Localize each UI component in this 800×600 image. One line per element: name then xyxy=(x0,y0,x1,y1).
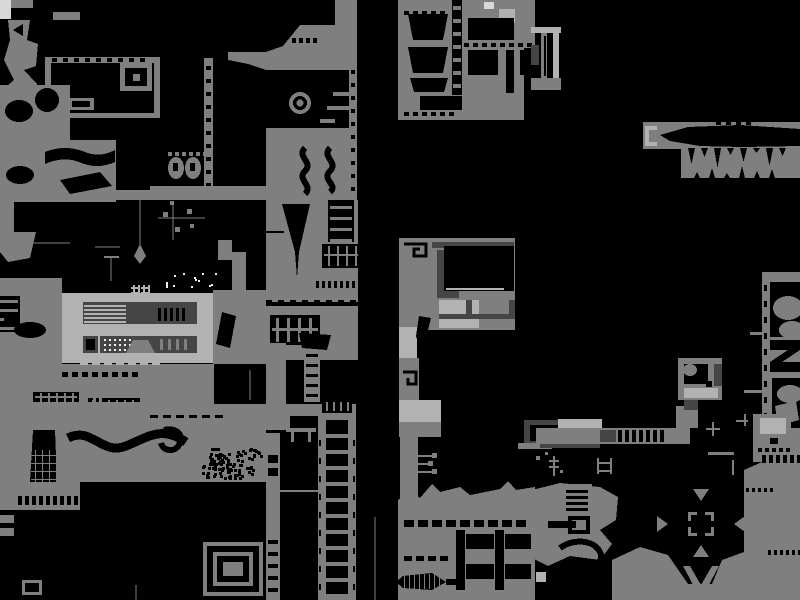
map-shape xyxy=(0,414,290,430)
map-shape xyxy=(84,309,126,311)
ledge xyxy=(333,92,349,96)
map-shape xyxy=(31,471,57,472)
map-shape xyxy=(446,520,456,527)
room xyxy=(505,564,531,579)
map-shape xyxy=(67,496,71,505)
map-shape xyxy=(351,109,355,113)
rubble-specks xyxy=(251,473,254,476)
map-shape xyxy=(136,585,137,600)
room xyxy=(420,96,462,110)
map-shape xyxy=(306,384,318,387)
map-shape xyxy=(132,372,138,377)
indicator-lights xyxy=(109,344,111,346)
room xyxy=(408,14,448,40)
map-shape xyxy=(764,397,767,403)
map-shape xyxy=(80,357,88,365)
map-shape xyxy=(353,530,355,536)
map-shape xyxy=(319,548,321,554)
rubble-specks xyxy=(238,453,241,456)
map-shape xyxy=(299,333,331,350)
rubble-specks xyxy=(249,449,252,452)
rubble-specks xyxy=(214,448,217,451)
map-shape xyxy=(168,152,172,156)
map-shape xyxy=(326,450,348,454)
star-specks xyxy=(173,285,175,287)
map-shape xyxy=(409,574,410,589)
rubble-specks xyxy=(224,477,227,480)
map-shape xyxy=(399,422,441,437)
map-shape xyxy=(163,212,168,217)
map-shape xyxy=(213,552,253,556)
map-shape xyxy=(0,243,70,244)
rubble-specks xyxy=(233,463,236,466)
map-shape xyxy=(319,566,321,572)
map-shape xyxy=(429,574,430,589)
map-shape xyxy=(140,357,148,365)
map-shape xyxy=(404,556,412,561)
star-specks xyxy=(166,282,168,284)
map-shape xyxy=(268,468,278,476)
map-shape xyxy=(586,516,590,534)
map-shape xyxy=(716,120,721,125)
map-shape xyxy=(776,455,780,463)
map-shape xyxy=(299,38,303,43)
map-shape xyxy=(158,308,161,321)
map-shape xyxy=(566,496,588,499)
star-specks xyxy=(194,277,196,279)
map-shape xyxy=(96,58,101,62)
map-shape xyxy=(102,372,108,377)
map-shape xyxy=(62,372,68,377)
rubble-specks xyxy=(222,467,225,470)
map-shape xyxy=(176,308,179,321)
map-shape xyxy=(189,415,197,418)
rubble-specks xyxy=(213,475,216,478)
map-shape xyxy=(453,45,461,49)
map-shape xyxy=(60,496,64,505)
star-specks xyxy=(174,275,176,277)
map-shape xyxy=(482,43,487,47)
map-shape xyxy=(92,372,98,377)
map-shape xyxy=(160,339,163,350)
ledge xyxy=(327,106,349,110)
map-shape xyxy=(112,372,118,377)
gate-structure xyxy=(531,27,561,33)
map-shape xyxy=(306,38,310,43)
map-shape xyxy=(765,448,769,452)
light-box xyxy=(399,400,441,422)
map-shape xyxy=(93,390,96,403)
map-shape xyxy=(25,496,29,505)
rubble-specks xyxy=(239,477,242,480)
map-shape xyxy=(168,339,171,350)
map-shape xyxy=(764,285,767,291)
map-shape xyxy=(5,100,33,122)
map-shape xyxy=(268,455,278,463)
ruler-mark xyxy=(706,139,764,141)
map-shape xyxy=(758,488,761,492)
map-shape xyxy=(319,458,321,464)
map-shape xyxy=(351,96,355,100)
map-shape xyxy=(232,252,246,292)
rubble-specks xyxy=(238,469,241,472)
rubble-specks xyxy=(252,469,255,472)
rubble-specks xyxy=(239,464,242,467)
map-shape xyxy=(764,488,767,492)
indicator-lights xyxy=(114,349,116,351)
map-shape xyxy=(313,38,317,43)
map-shape xyxy=(558,419,602,428)
map-shape xyxy=(0,300,18,303)
map-shape xyxy=(353,548,355,554)
map-shape xyxy=(780,550,783,555)
map-shape xyxy=(744,414,746,426)
map-shape xyxy=(439,314,515,319)
map-shape xyxy=(520,50,528,75)
map-shape xyxy=(280,490,320,492)
map-shape xyxy=(175,227,180,232)
map-shape xyxy=(196,152,200,156)
rubble-specks xyxy=(246,467,249,470)
indicator-lights xyxy=(119,344,121,346)
map-shape xyxy=(404,11,409,15)
star-specks xyxy=(195,279,197,281)
map-shape xyxy=(11,0,33,8)
rubble-specks xyxy=(214,468,217,471)
map-shape xyxy=(706,135,708,146)
rubble-specks xyxy=(221,459,224,462)
crenellation xyxy=(290,300,296,306)
map-shape xyxy=(736,420,748,422)
map-shape xyxy=(173,163,178,171)
map-shape xyxy=(291,432,294,442)
map-shape xyxy=(190,224,194,228)
map-shape xyxy=(351,70,355,74)
map-shape xyxy=(56,450,57,482)
star-specks xyxy=(183,273,185,275)
map-shape xyxy=(495,530,504,590)
map-shape xyxy=(491,43,496,47)
map-shape xyxy=(352,281,355,288)
map-shape xyxy=(99,390,102,403)
map-shape xyxy=(74,496,78,505)
room xyxy=(466,534,494,549)
compass-bracket xyxy=(688,527,691,536)
rubble-specks xyxy=(219,472,222,475)
map-shape xyxy=(509,300,515,319)
map-shape xyxy=(351,187,355,191)
crenellation xyxy=(314,300,320,306)
rubble-specks xyxy=(249,467,252,470)
map-shape xyxy=(187,209,192,214)
map-shape xyxy=(708,452,734,455)
map-shape xyxy=(506,50,514,93)
map-shape xyxy=(351,122,355,126)
rubble-specks xyxy=(254,449,257,452)
rubble-specks xyxy=(253,454,256,457)
indicator-lights xyxy=(114,344,116,346)
compass-bracket xyxy=(688,512,691,521)
map-shape xyxy=(189,152,193,156)
crenellation xyxy=(338,300,344,306)
game-map-viewport[interactable] xyxy=(0,0,800,600)
map-shape xyxy=(779,448,783,452)
map-shape xyxy=(163,415,171,418)
indicator-lights xyxy=(119,349,121,351)
tick-arm xyxy=(418,455,432,457)
rubble-specks xyxy=(234,477,237,480)
corner-block xyxy=(0,0,11,19)
map-shape xyxy=(424,574,425,589)
map-shape xyxy=(453,84,461,88)
map-shape xyxy=(95,190,150,200)
map-shape xyxy=(328,281,331,288)
map-shape xyxy=(453,71,461,75)
map-shape xyxy=(190,163,195,171)
rubble-specks xyxy=(248,471,251,474)
map-shape xyxy=(326,562,348,566)
map-shape xyxy=(446,288,504,290)
map-shape xyxy=(726,120,731,125)
map-shape xyxy=(353,476,355,482)
map-shape xyxy=(206,157,211,161)
rubble-specks xyxy=(214,464,217,467)
star-specks xyxy=(166,284,168,286)
star-specks xyxy=(202,273,204,275)
map-shape xyxy=(316,281,319,288)
indicator-lights xyxy=(109,349,111,351)
indicator-lights xyxy=(124,349,126,351)
map-shape xyxy=(597,462,612,464)
rubble-specks xyxy=(210,453,213,456)
rubble-specks xyxy=(242,450,245,453)
map-shape xyxy=(140,58,145,62)
map-shape xyxy=(22,580,25,595)
map-shape xyxy=(639,430,643,442)
map-shape xyxy=(131,287,140,289)
map-shape xyxy=(6,166,34,184)
map-shape xyxy=(131,292,140,294)
map-shape xyxy=(488,520,498,527)
map-shape xyxy=(95,247,120,248)
map-shape xyxy=(764,365,767,371)
map-shape xyxy=(347,402,349,411)
map-shape xyxy=(85,58,90,62)
map-shape xyxy=(783,455,787,463)
map-shape xyxy=(84,305,126,307)
map-shape xyxy=(170,201,174,205)
rubble-specks xyxy=(228,476,231,479)
map-shape xyxy=(319,494,321,500)
map-shape xyxy=(440,112,445,116)
map-shape xyxy=(351,148,355,152)
rubble-specks xyxy=(211,448,214,451)
map-shape xyxy=(762,455,766,463)
map-shape xyxy=(326,402,328,411)
map-shape xyxy=(446,579,460,585)
map-shape xyxy=(141,292,150,294)
map-shape xyxy=(502,520,512,527)
map-shape xyxy=(764,349,767,355)
map-shape xyxy=(346,281,349,288)
map-shape xyxy=(206,92,211,96)
map-shape xyxy=(39,496,43,505)
map-shape xyxy=(31,455,57,456)
rubble-specks xyxy=(234,469,237,472)
map-shape xyxy=(351,161,355,165)
map-shape xyxy=(268,588,278,592)
map-shape xyxy=(18,496,22,505)
rubble-specks xyxy=(227,471,230,474)
map-shape xyxy=(319,476,321,482)
map-shape xyxy=(453,19,461,23)
map-shape xyxy=(536,572,546,582)
rubble-specks xyxy=(260,455,263,458)
map-shape xyxy=(150,186,266,200)
map-shape xyxy=(42,450,43,482)
map-shape xyxy=(268,564,278,568)
rubble-specks xyxy=(217,448,220,451)
map-shape xyxy=(375,517,376,600)
room xyxy=(505,534,531,549)
map-shape xyxy=(414,574,415,589)
map-shape xyxy=(786,550,789,555)
map-shape xyxy=(419,574,420,589)
indicator-lights xyxy=(104,349,106,351)
map-shape xyxy=(306,394,318,397)
map-shape xyxy=(466,300,472,316)
tick-arm xyxy=(418,463,428,465)
map-shape xyxy=(509,43,514,47)
map-shape xyxy=(63,58,68,62)
star-specks xyxy=(191,286,193,288)
map-shape xyxy=(746,488,749,492)
map-shape xyxy=(268,576,278,580)
rubble-specks xyxy=(213,460,216,463)
map-shape xyxy=(736,120,741,125)
map-shape xyxy=(440,11,445,15)
map-shape xyxy=(322,281,325,288)
antenna xyxy=(562,484,592,488)
map-shape xyxy=(308,432,311,442)
star-specks xyxy=(215,273,217,275)
game-screenshot xyxy=(0,0,800,600)
map-shape xyxy=(53,12,80,20)
indicator-lights xyxy=(109,339,111,341)
wire xyxy=(140,200,141,246)
rubble-specks xyxy=(237,459,240,462)
rubble-specks xyxy=(220,463,223,466)
map-shape xyxy=(404,574,405,589)
map-shape xyxy=(684,388,718,398)
map-shape xyxy=(786,448,790,452)
rubble-specks xyxy=(248,457,251,460)
ledge xyxy=(320,119,335,123)
map-shape xyxy=(49,450,50,482)
map-shape xyxy=(330,206,352,209)
map-shape xyxy=(249,552,253,586)
room xyxy=(468,50,498,75)
map-shape xyxy=(175,152,179,156)
map-shape xyxy=(484,2,494,9)
map-shape xyxy=(32,496,36,505)
map-shape xyxy=(334,281,337,288)
indicator-lights xyxy=(119,339,121,341)
rubble-specks xyxy=(251,458,254,461)
map-shape xyxy=(330,217,352,220)
map-shape xyxy=(72,372,78,377)
map-shape xyxy=(516,520,526,527)
map-shape xyxy=(326,434,348,438)
map-shape xyxy=(116,357,124,365)
map-shape xyxy=(422,112,427,116)
star-specks xyxy=(166,286,168,288)
map-shape xyxy=(660,430,664,442)
room xyxy=(466,564,494,579)
map-shape xyxy=(46,496,50,505)
map-shape xyxy=(540,444,600,448)
map-shape xyxy=(762,135,764,146)
map-shape xyxy=(764,301,767,307)
map-shape xyxy=(770,488,773,492)
indicator-lights xyxy=(104,339,106,341)
map-shape xyxy=(712,422,714,436)
map-shape xyxy=(39,580,42,595)
map-shape xyxy=(434,574,435,589)
map-shape xyxy=(545,452,548,455)
map-shape xyxy=(128,357,136,365)
map-shape xyxy=(768,550,771,555)
rubble-specks xyxy=(227,459,230,462)
map-shape xyxy=(84,313,126,315)
rubble-specks xyxy=(228,453,231,456)
map-shape xyxy=(549,466,559,468)
map-shape xyxy=(531,78,561,90)
map-shape xyxy=(645,128,649,144)
map-shape xyxy=(404,520,414,527)
map-shape xyxy=(413,11,418,15)
map-shape xyxy=(176,415,184,418)
map-shape xyxy=(460,520,470,527)
map-shape xyxy=(319,440,321,446)
rubble-specks xyxy=(203,465,206,468)
map-shape xyxy=(0,309,18,312)
map-shape xyxy=(518,43,523,47)
map-shape xyxy=(35,88,59,112)
map-shape xyxy=(53,496,57,505)
crenellation xyxy=(266,300,272,306)
map-shape xyxy=(319,512,321,518)
map-shape xyxy=(473,43,478,47)
rubble-specks xyxy=(208,467,211,470)
map-shape xyxy=(326,420,348,598)
rubble-specks xyxy=(218,468,221,471)
map-shape xyxy=(104,256,119,258)
map-shape xyxy=(272,328,318,331)
map-shape xyxy=(618,430,622,442)
indicator-lights xyxy=(124,344,126,346)
map-shape xyxy=(431,11,436,15)
map-shape xyxy=(790,455,794,463)
map-shape xyxy=(330,228,352,231)
map-shape xyxy=(129,58,134,62)
map-shape xyxy=(500,43,505,47)
map-shape xyxy=(404,112,409,116)
map-shape xyxy=(418,520,428,527)
map-shape xyxy=(750,332,762,335)
nested-frames xyxy=(203,592,263,596)
map-shape xyxy=(326,498,348,502)
